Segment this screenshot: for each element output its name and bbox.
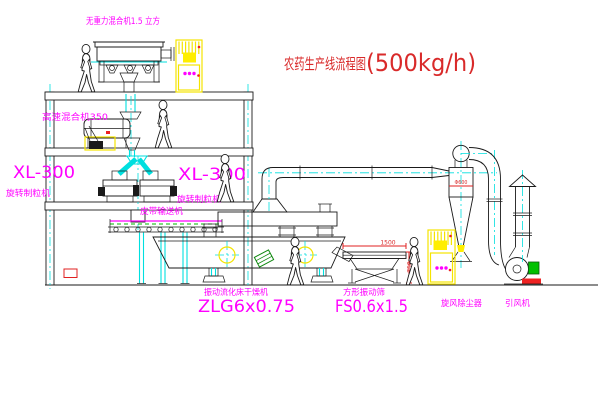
indicator-lamp [197,74,200,77]
granulator-left [98,171,139,202]
fan-motor [529,262,540,274]
dryer-pedestal-right [311,268,333,282]
process-flow-drawing: 无重力混合机1.5 立方 高速混合机350 XL-300 旋转制粒机 XL-30… [0,0,600,403]
cyclone-separator [449,141,473,268]
indicator-lamp [449,235,452,238]
dryer-hood-ports [278,204,334,237]
dryer-hood [218,212,337,226]
label-granulator-left-model: XL-300 [13,163,75,183]
mixer-motor [89,141,103,149]
floor-slab-2 [45,148,253,156]
cabinet-panel [434,241,448,251]
cabinet-door [179,65,200,90]
label-cyclone: 旋风除尘器 [441,298,482,309]
gravity-free-mixer [91,42,174,92]
label-sieve-model: FS0.6x1.5 [335,297,408,317]
cabinet-panel [183,53,196,63]
dim-sieve-length: 1500 [380,240,395,247]
fan-base [522,279,541,285]
control-knobs [435,266,447,269]
label-granulator-center-model: XL-300 [178,165,246,185]
indicator-lamp [449,269,452,272]
floor-slab-1 [45,92,253,100]
cyclone-discharge-valve [457,245,465,252]
control-knobs [183,72,195,75]
duct-inner [276,178,432,200]
conveyor-rollers [114,227,217,231]
control-cabinet-top [176,40,202,92]
conveyor-legs [140,233,188,284]
label-granulator-left-name: 旋转制粒机 [6,188,51,199]
indicator-lamp [198,46,201,49]
exhaust-stack [510,170,536,262]
dryer-exhaust-funnel [253,199,287,212]
mixer-inlet-hopper [120,112,141,119]
belt-conveyor [108,219,224,284]
fan-scroll [506,258,529,281]
duct-outer [262,168,432,200]
dim-cyclone-diameter: Φ600 [455,180,468,186]
label-dryer-model: ZLG6x0.75 [198,297,295,317]
induced-draft-fan [504,247,543,284]
drawing-title-capacity: (500kg/h) [366,49,476,77]
label-gravity-free-mixer: 无重力混合机1.5 立方 [86,15,160,27]
downcomer-duct [461,148,512,275]
vibrating-sieve [343,243,412,283]
cabinet-vent-hatch [179,42,199,55]
mixer-valves [106,65,154,73]
dryer-pedestal-left [203,268,225,282]
worker-figure-dryer [287,237,304,284]
label-high-speed-mixer: 高速混合机350 [42,111,108,123]
label-granulator-center-name: 旋转制粒机 [177,194,222,205]
drawing-title: 农药生产线流程图 [284,55,366,73]
control-cabinet-ground [428,230,455,284]
floor-fixture [64,269,77,278]
granulator-right [140,171,177,202]
dryer-nameplate [254,250,273,267]
worker-figure-second-floor [155,100,172,147]
worker-figure-top-floor [78,44,95,91]
label-belt-conveyor: 皮带输送机 [140,206,183,217]
sieve-screen-box [350,259,399,270]
label-fan: 引风机 [505,298,530,309]
dryer-body [153,237,345,268]
mixer-side-port [161,50,171,58]
process-flow-svg: 无重力混合机1.5 立方 高速混合机350 XL-300 旋转制粒机 XL-30… [0,0,600,403]
